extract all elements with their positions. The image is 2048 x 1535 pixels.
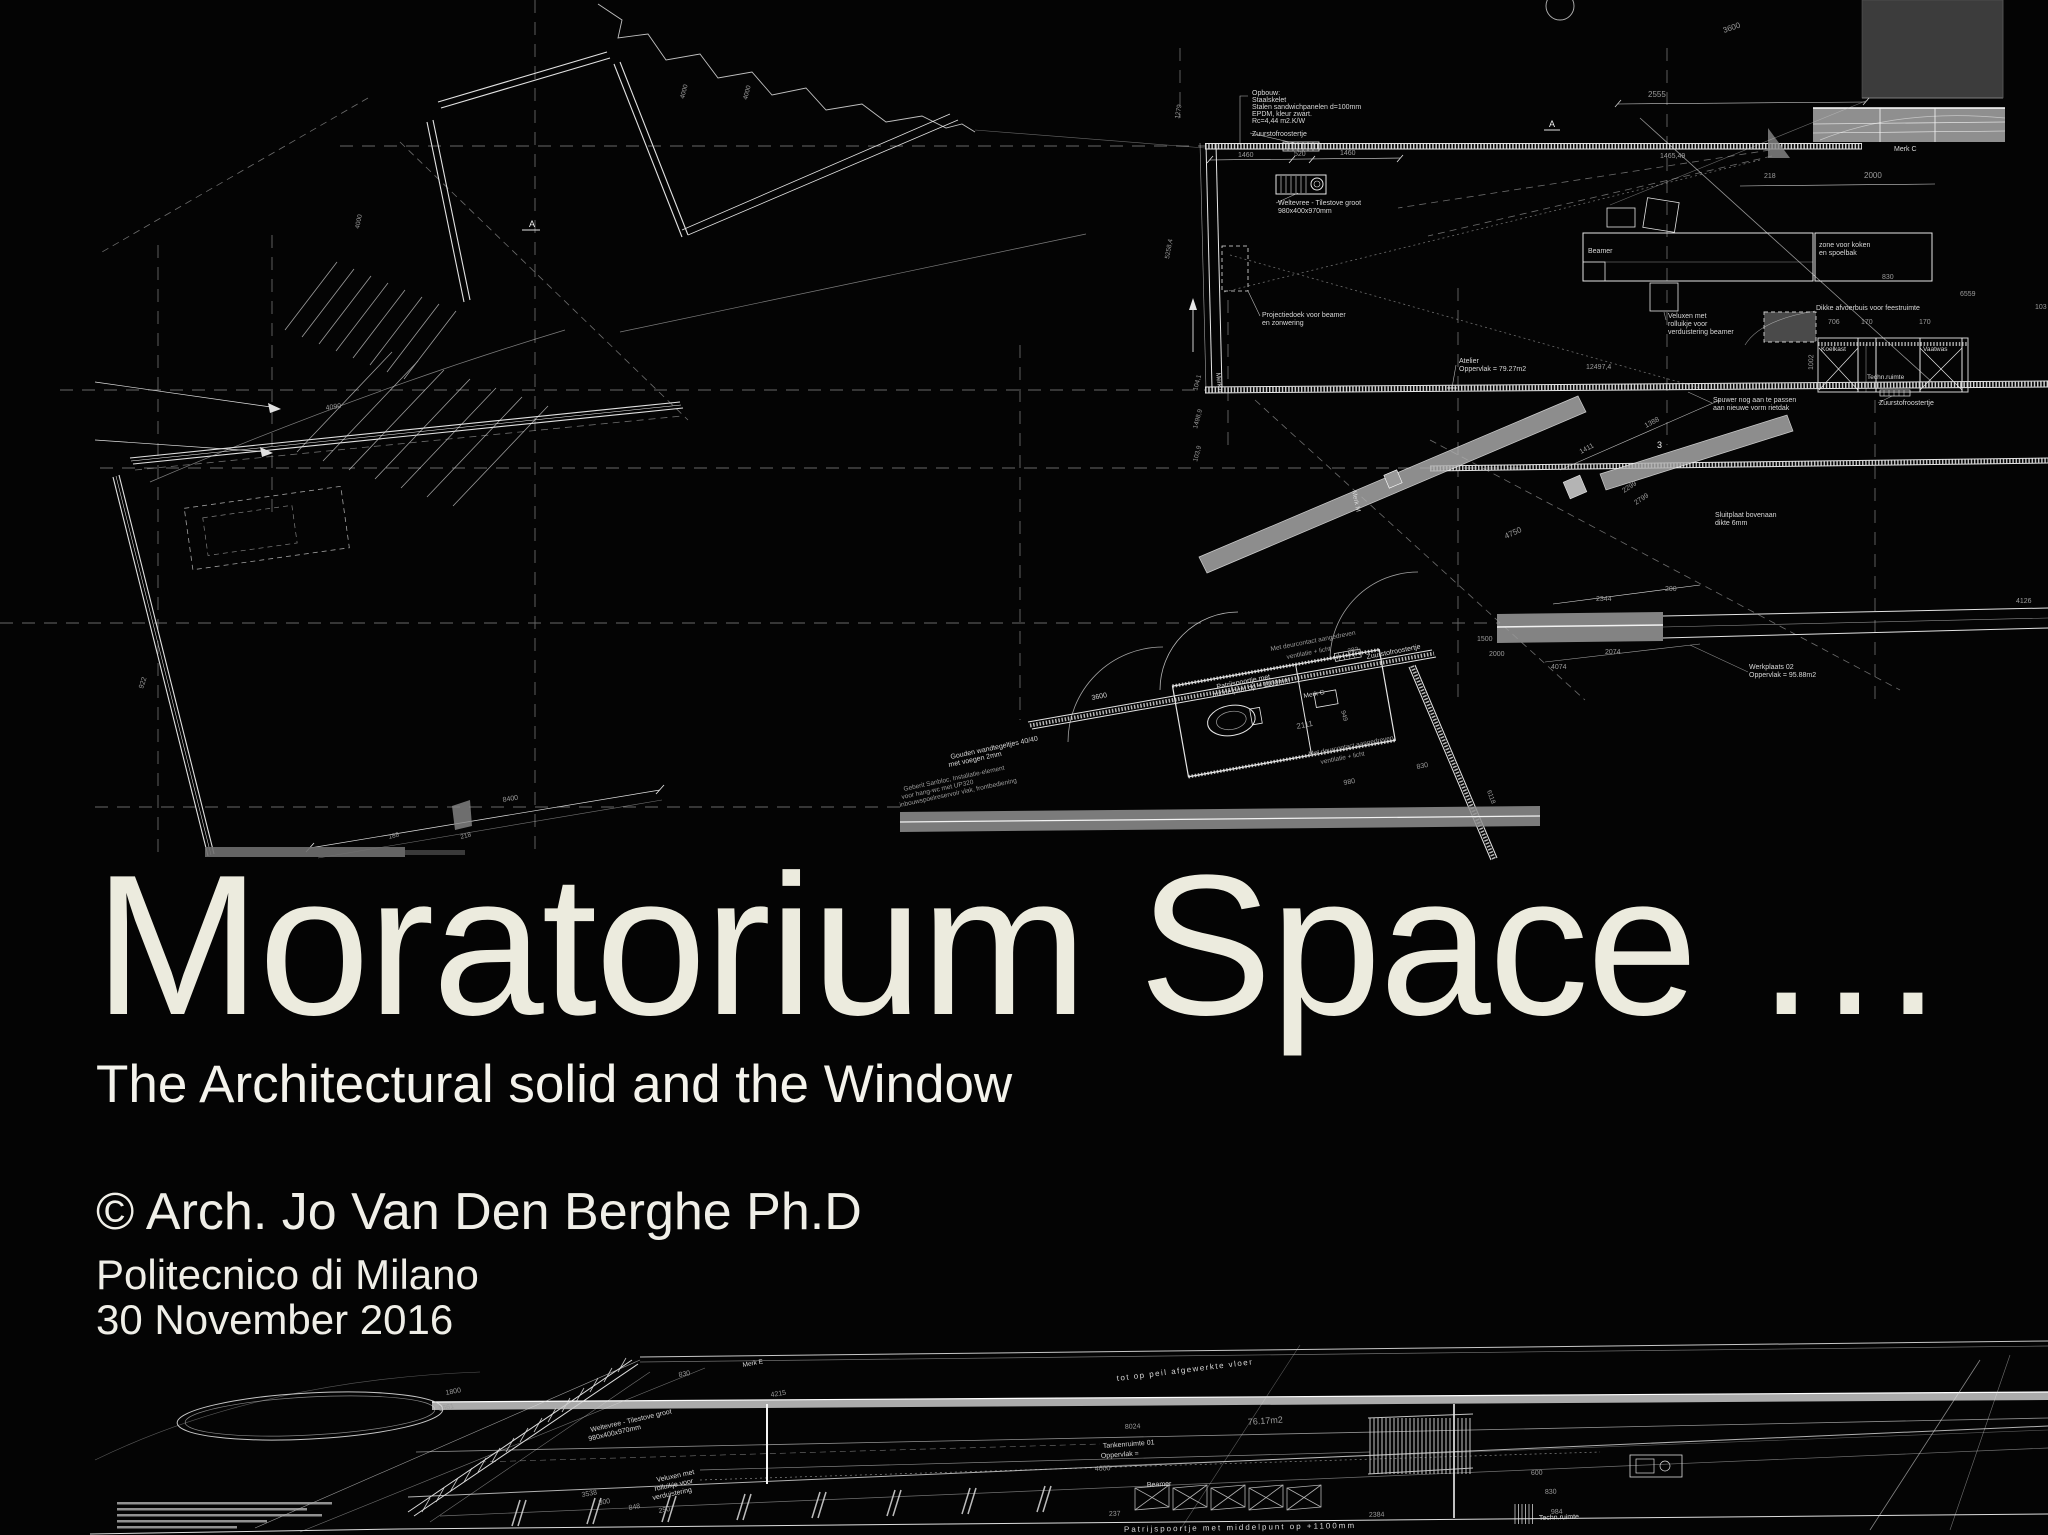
drawing-annotation: Sluitplaat bovenaan (1715, 512, 1777, 519)
drawing-annotation: 200 (1665, 586, 1677, 593)
drawing-annotation: Staalskelet (1252, 97, 1286, 104)
drawing-annotation: 1498,9 (1192, 408, 1204, 429)
drawing-annotation: Merk C (1894, 146, 1917, 153)
drawing-annotation: Techn.ruimte (1867, 374, 1905, 381)
drawing-annotation: 4000 (354, 213, 364, 229)
drawing-annotation: 800 (598, 1498, 611, 1507)
drawing-annotation: Beamer (1147, 1481, 1173, 1489)
drawing-annotation: Spuwer nog aan te passen (1713, 397, 1796, 404)
drawing-annotation: Patrijspoortje met middelpunt op +1100mm (1124, 1521, 1356, 1534)
drawing-annotation: Koelkast (1821, 346, 1846, 353)
drawing-annotation: Opbouw: (1252, 90, 1280, 97)
jagged-roof-outline (598, 4, 975, 132)
workshop-zone (900, 396, 2048, 860)
drawing-annotation: 2344 (1596, 596, 1612, 603)
drawing-annotation: 4074 (1551, 664, 1567, 671)
drawing-annotation: Oppervlak = 95.88m2 (1749, 672, 1816, 679)
drawing-annotation: 3600 (1091, 692, 1108, 702)
drawing-annotation: 600 (1531, 1470, 1543, 1477)
drawing-annotation: Rc=4,44 m2.K/W (1252, 118, 1305, 125)
drawing-annotation: 1465,49 (1660, 153, 1685, 160)
drawing-annotation: 250 (658, 1506, 671, 1515)
drawing-annotation: rolluikje voor (1668, 321, 1708, 328)
drawing-annotation: 103 (2035, 304, 2047, 311)
drawing-annotation: Vaatwas (1923, 346, 1948, 353)
vertical-hatch-block (1368, 1414, 1473, 1474)
upper-left-walls (150, 0, 1574, 482)
drawing-annotation: 170 (1861, 319, 1873, 326)
drawing-annotation: 830 (1882, 274, 1894, 281)
drawing-annotation: 76.17m2 (1247, 1415, 1283, 1427)
drawing-annotation: 237 (1109, 1511, 1121, 1518)
drawing-annotation: Projectiedoek voor beamer (1262, 312, 1346, 319)
drawing-annotation: aan nieuwe vorm rietdak (1713, 405, 1790, 412)
drawing-annotation: 1460 (1340, 150, 1356, 157)
drawing-annotation: Beamer (1588, 248, 1613, 255)
drawing-annotation: EPDM, kleur zwart. (1252, 111, 1312, 118)
drawing-annotation: 980x400x970mm (1278, 208, 1332, 215)
drawing-annotation: 848 (628, 1503, 641, 1512)
bottom-perspective-plan (90, 1341, 2048, 1534)
blueprint-drawing: Opbouw:StaalskeletStalen sandwichpanelen… (0, 0, 2048, 1535)
drawing-annotation: 2555 (1648, 90, 1666, 99)
drawing-annotation: 922 (138, 676, 148, 689)
drawing-annotation: 1460 (1238, 152, 1254, 159)
drawing-annotation: A (529, 219, 535, 229)
drawing-annotation: 2000 (1489, 651, 1505, 658)
drawing-annotation: A (1549, 119, 1555, 129)
drawing-annotation: 980 (1343, 778, 1356, 787)
drawing-annotation: Tankenruimte 01 (1103, 1439, 1155, 1450)
drawing-annotation: 949 (1339, 710, 1349, 723)
drawing-annotation: 1388 (1644, 416, 1661, 430)
drawing-annotation: 1411 (1579, 442, 1596, 455)
drawing-annotation: Merk E (742, 1358, 764, 1369)
drawing-annotation: Werkplaats 02 (1749, 664, 1794, 671)
drawing-annotation: 6559 (1960, 291, 1976, 298)
drawing-annotation: 8024 (1125, 1423, 1141, 1431)
drawing-annotation: Oppervlak = 79.27m2 (1459, 366, 1526, 373)
drawing-annotation: 2384 (1369, 1511, 1385, 1519)
drawing-annotation: 1279 (1174, 104, 1183, 120)
drawing-annotation: 3600 (1722, 20, 1742, 34)
drawing-annotation: 520 (1294, 151, 1306, 158)
drawing-annotation: tot op peil afgewerkte vloer (1116, 1357, 1254, 1383)
drawing-annotation: 8400 (502, 795, 519, 804)
drawing-annotations: Opbouw:StaalskeletStalen sandwichpanelen… (138, 20, 2047, 1534)
drawing-annotation: 2111 (1296, 719, 1315, 731)
drawing-annotation: Atelier (1459, 358, 1480, 365)
left-wing-walls (95, 382, 683, 858)
construction-dashed-lines (102, 98, 1900, 700)
drawing-annotation: 4126 (2016, 598, 2032, 605)
drawing-annotation: Stalen sandwichpanelen d=100mm (1252, 104, 1361, 111)
drawing-annotation: 188 (388, 831, 401, 841)
drawing-annotation: Weltevree - Tilestove groot (1278, 200, 1361, 207)
drawing-annotation: 3 (1657, 440, 1662, 450)
drawing-annotation: 830 (678, 1370, 691, 1379)
drawing-annotation: 2799 (1633, 492, 1650, 506)
drawing-annotation: Zuurstofroostertje (1879, 400, 1934, 407)
drawing-annotation: 103,9 (1192, 445, 1203, 463)
drawing-annotation: 4215 (770, 1390, 787, 1399)
drawing-annotation: 2074 (1605, 649, 1621, 656)
drawing-annotation: 12497,4 (1586, 364, 1611, 371)
drawing-annotation: 4750 (1503, 525, 1523, 541)
drawing-annotation: 4000 (679, 83, 690, 99)
drawing-annotation: en spoelbak (1819, 250, 1857, 257)
drawing-annotation: 4090 (325, 403, 342, 412)
drawing-annotation: Merk G (1303, 689, 1325, 700)
drawing-annotation: 1002 (1808, 354, 1815, 370)
drawing-annotation: Zuurstofroostertje (1366, 644, 1421, 661)
stair-hatch (285, 262, 548, 506)
drawing-annotation: 3538 (581, 1489, 598, 1499)
drawing-annotation: Dikke afvoerbuis voor feestruimte (1816, 305, 1920, 312)
drawing-annotation: 4000 (742, 84, 753, 100)
drawing-annotation: 830 (1545, 1489, 1557, 1496)
drawing-annotation: en zonwering (1262, 320, 1304, 327)
drawing-annotation: 218 (1764, 173, 1776, 180)
drawing-annotation: 5258,4 (1164, 238, 1174, 259)
drawing-annotation: 4000 (1095, 1465, 1111, 1473)
drawing-annotation: 170 (1919, 319, 1931, 326)
drawing-annotation: verduistering beamer (1668, 329, 1734, 336)
drawing-annotation: 706 (1828, 319, 1840, 326)
drawing-annotation: 830 (1416, 762, 1429, 771)
slide: Opbouw:StaalskeletStalen sandwichpanelen… (0, 0, 2048, 1535)
drawing-annotation: 6118 (1485, 789, 1496, 805)
drawing-annotation: dikte 6mm (1715, 520, 1747, 527)
drawing-annotation: 104,1 (1192, 374, 1203, 392)
drawing-annotation: 1500 (1477, 636, 1493, 643)
drawing-annotation: Veluxen met (1668, 313, 1707, 320)
illegible-note-lines (117, 1502, 332, 1529)
grid-lines (0, 0, 1875, 852)
drawing-annotation: Techn.ruimte (1539, 1514, 1579, 1522)
drawing-annotation: zone voor koken (1819, 242, 1870, 249)
drawing-annotation: Zuurstofroostertje (1252, 131, 1307, 138)
drawing-annotation: 218 (460, 831, 473, 841)
drawing-annotation: 1800 (445, 1387, 462, 1397)
drawing-annotation: 2000 (1864, 171, 1882, 180)
kitchen-zone (1583, 198, 1968, 403)
